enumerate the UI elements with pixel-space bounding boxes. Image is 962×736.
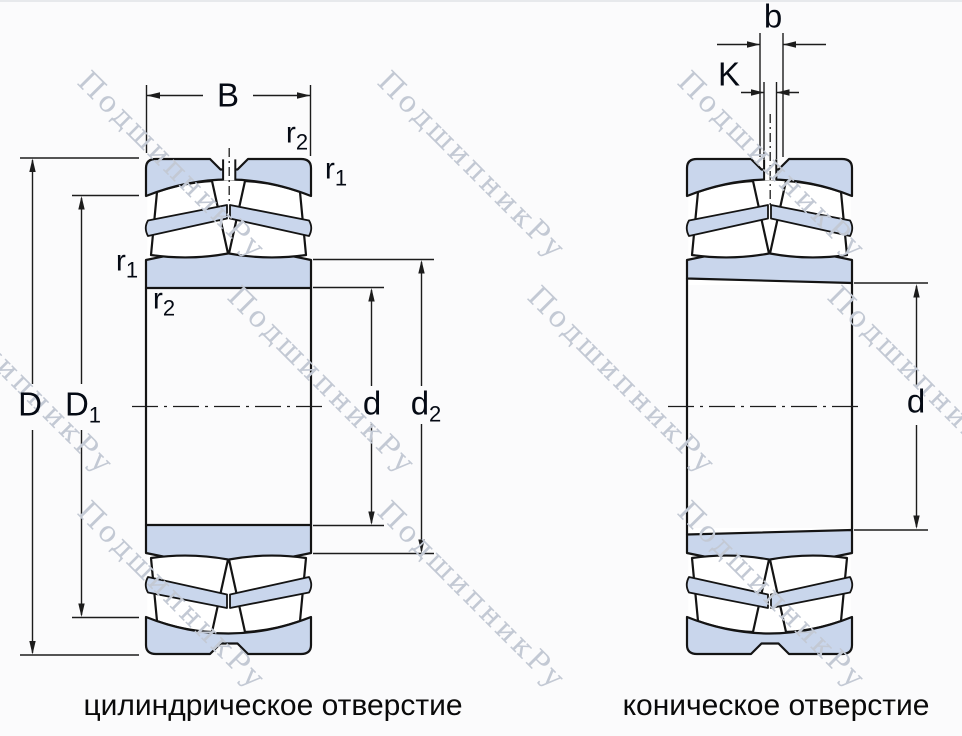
- dim-label-r1-left: r1: [116, 247, 138, 282]
- dim-label-D: D: [18, 388, 42, 427]
- caption-conical-bore: коническое отверстие: [623, 689, 930, 722]
- dim-label-d-left: d: [363, 387, 381, 426]
- dim-label-K: K: [718, 58, 740, 97]
- dim-label-B: B: [217, 79, 239, 118]
- dim-label-r2-top: r2: [286, 119, 308, 154]
- bearing-technical-drawing: ПодшипникРу ПодшипникРу ПодшипникРу Подш…: [0, 0, 962, 736]
- dim-label-d-right: d: [907, 385, 925, 424]
- dim-label-b: b: [764, 0, 782, 39]
- left-bearing-view: [132, 148, 327, 654]
- caption-cylindrical-bore: цилиндрическое отверстие: [83, 689, 462, 722]
- right-bearing-view: [668, 114, 864, 654]
- dim-label-d2: d2: [411, 387, 442, 426]
- bearing-diagram-canvas: [0, 2, 962, 736]
- dim-label-r1-right: r1: [325, 155, 347, 190]
- dim-label-r2-left: r2: [153, 285, 175, 320]
- dim-label-D1: D1: [65, 388, 101, 427]
